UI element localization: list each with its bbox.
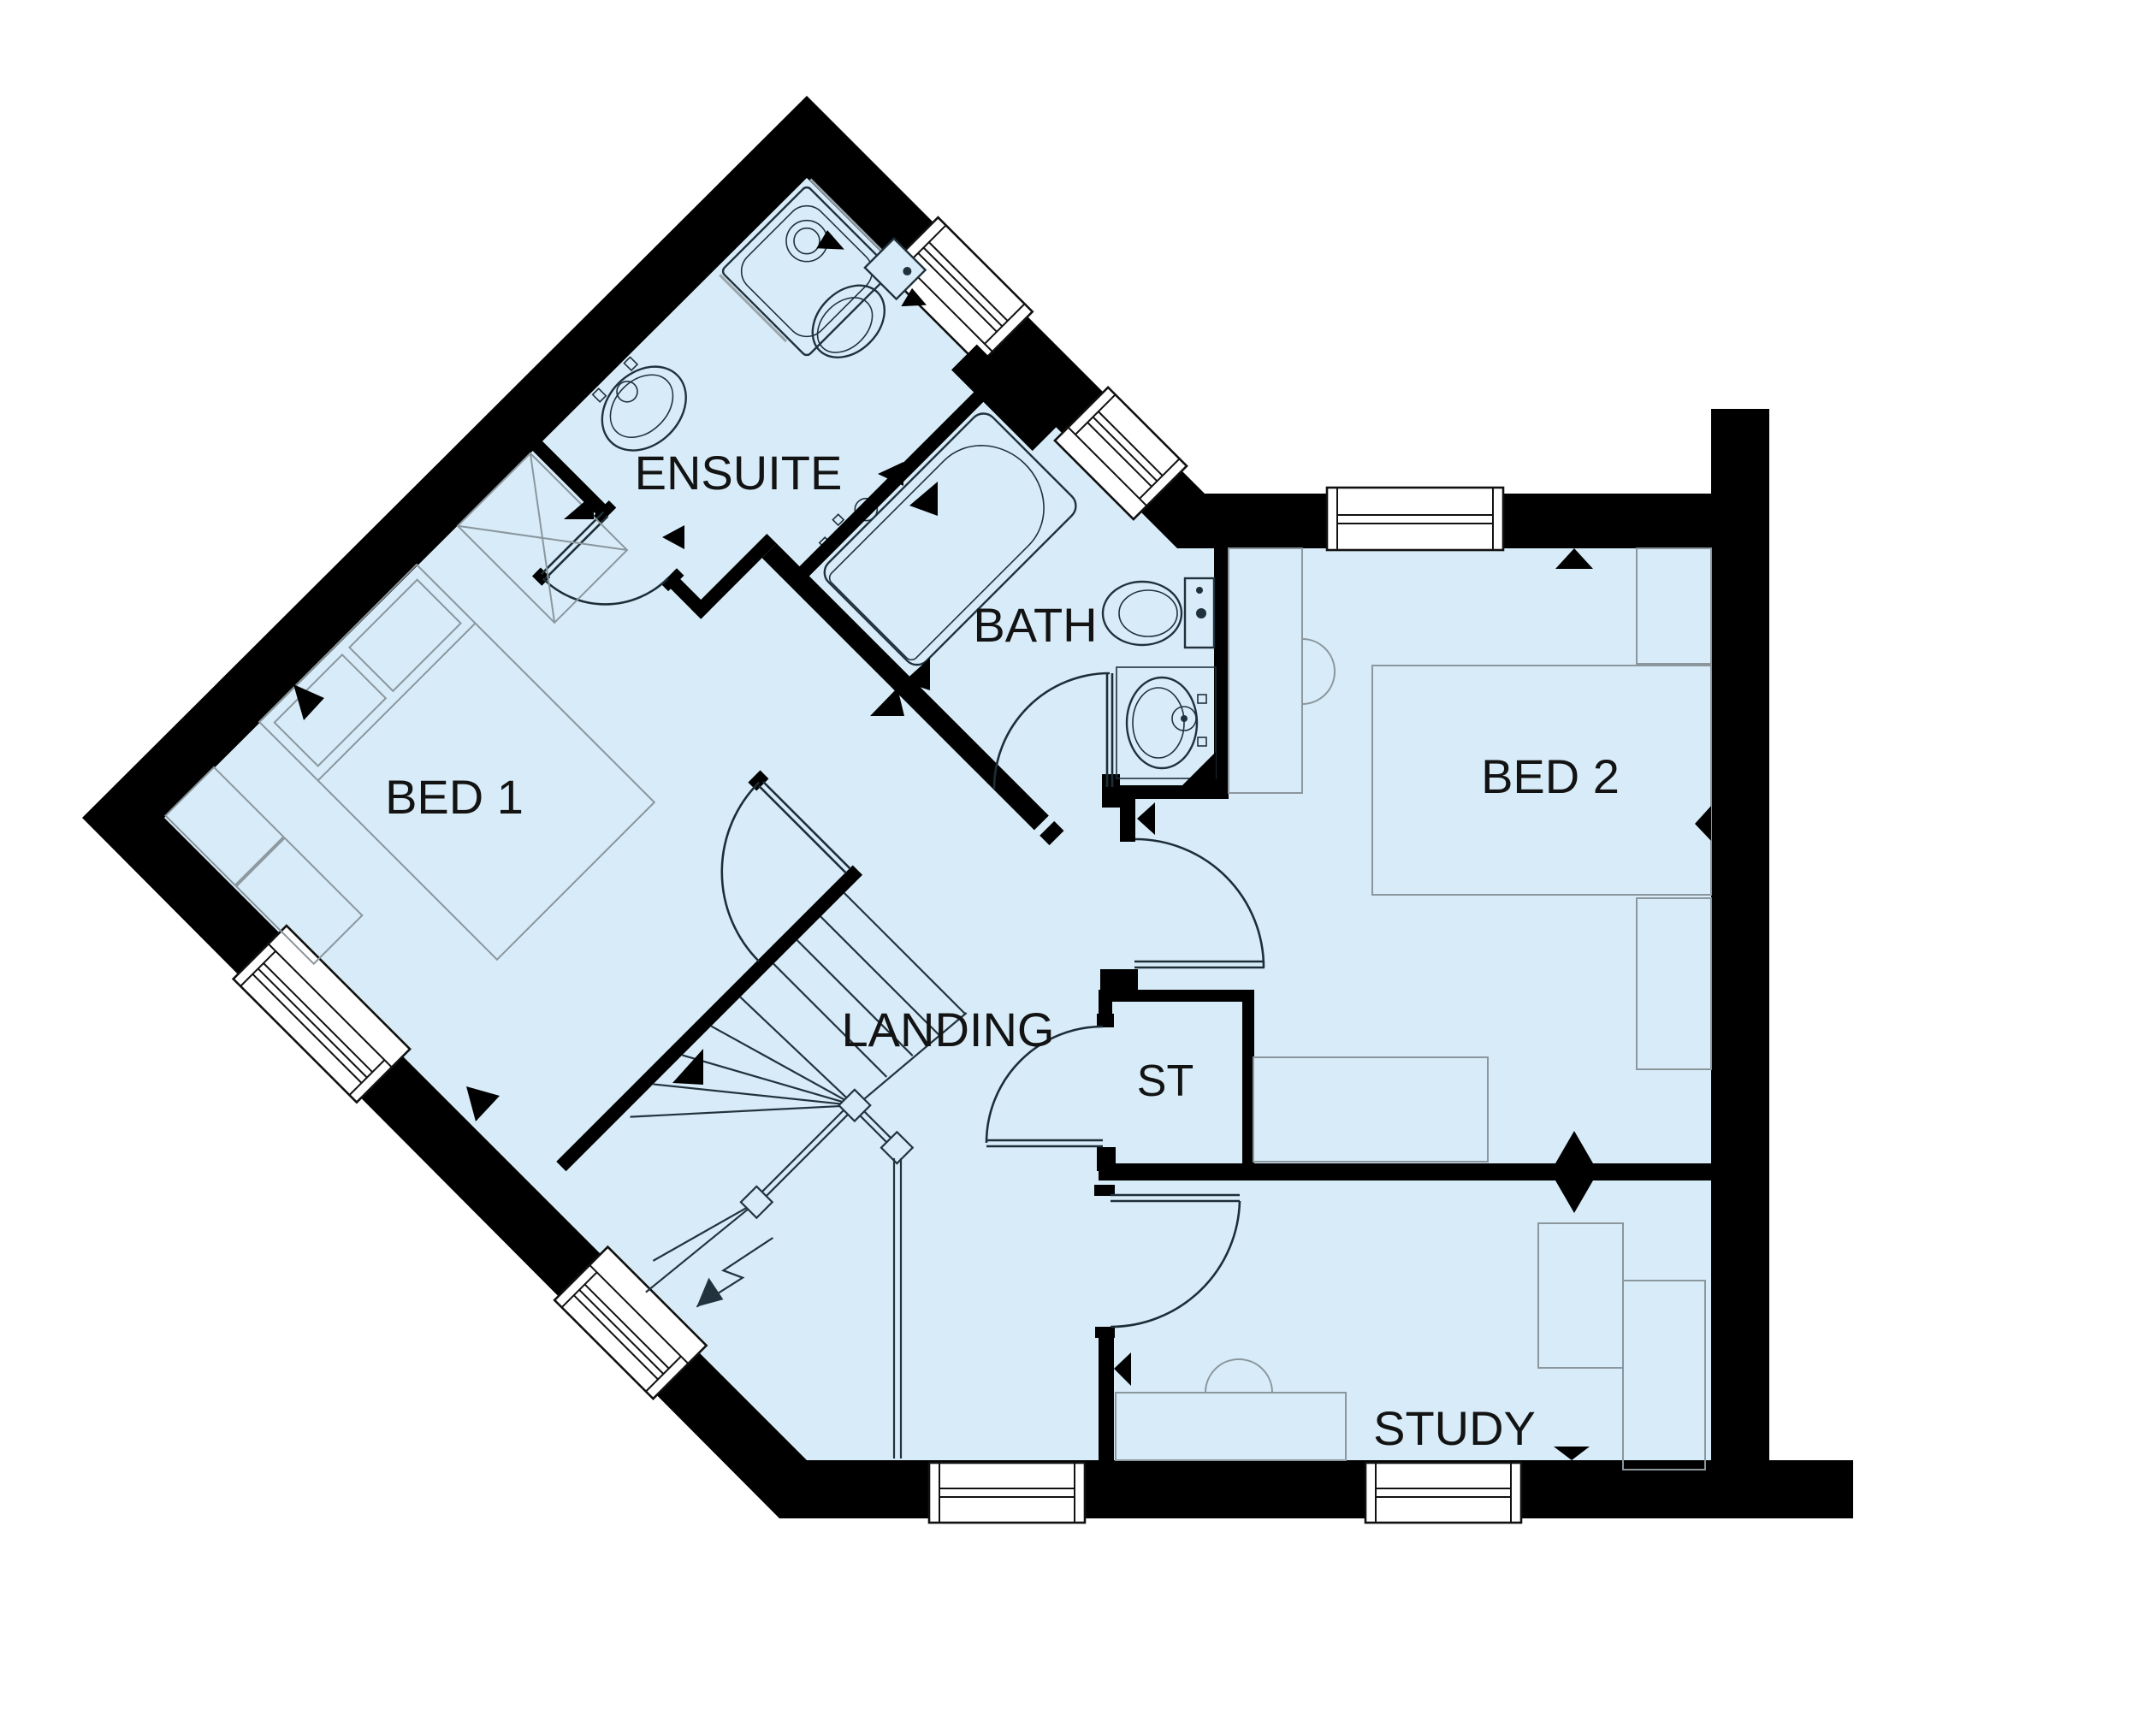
svg-text:ST: ST: [1137, 1056, 1193, 1106]
svg-text:BED 1: BED 1: [385, 770, 524, 824]
svg-text:STUDY: STUDY: [1373, 1401, 1536, 1455]
svg-text:BED 2: BED 2: [1481, 749, 1620, 803]
svg-text:ENSUITE: ENSUITE: [635, 446, 843, 500]
svg-text:LANDING: LANDING: [842, 1003, 1055, 1056]
svg-text:BATH: BATH: [973, 598, 1097, 652]
